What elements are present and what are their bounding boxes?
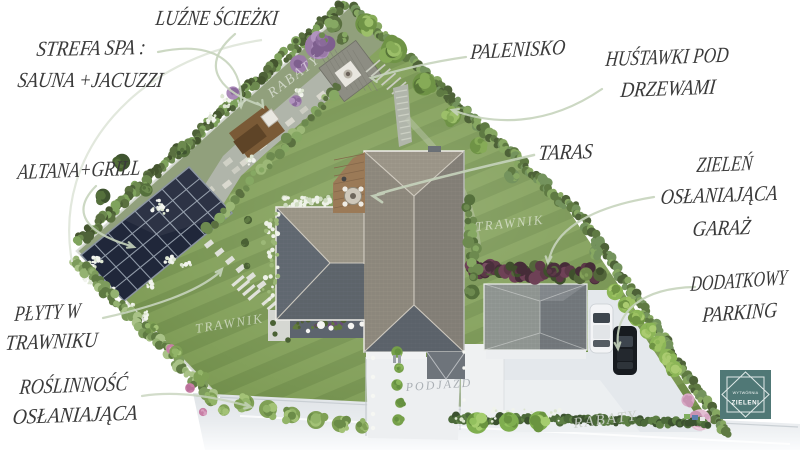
svg-text:ZIELENI: ZIELENI [732, 400, 760, 407]
svg-text:DRZEWAMI: DRZEWAMI [619, 75, 719, 102]
svg-text:TARAS: TARAS [537, 139, 594, 165]
svg-text:ROŚLINNOŚĆ: ROŚLINNOŚĆ [18, 371, 130, 399]
svg-text:ZIELEŃ: ZIELEŃ [695, 151, 755, 177]
svg-text:ALTANA+GRILL: ALTANA+GRILL [15, 156, 142, 184]
svg-text:OSŁANIAJĄCA: OSŁANIAJĄCA [659, 181, 779, 209]
svg-text:SAUNA +JACUZZI: SAUNA +JACUZZI [16, 68, 166, 92]
svg-text:HUŚTAWKI POD: HUŚTAWKI POD [604, 43, 731, 71]
svg-text:WYTWÓRNIA: WYTWÓRNIA [733, 390, 759, 395]
svg-text:TRAWNIKU: TRAWNIKU [4, 328, 100, 355]
svg-text:STREFA SPA :: STREFA SPA : [35, 35, 147, 61]
svg-text:PŁYTY W: PŁYTY W [13, 298, 83, 326]
svg-text:GARAŻ: GARAŻ [691, 215, 752, 241]
svg-text:LUŹNE ŚCIEŻKI: LUŹNE ŚCIEŻKI [153, 6, 281, 30]
svg-text:OSŁANIAJĄCA: OSŁANIAJĄCA [11, 401, 139, 429]
